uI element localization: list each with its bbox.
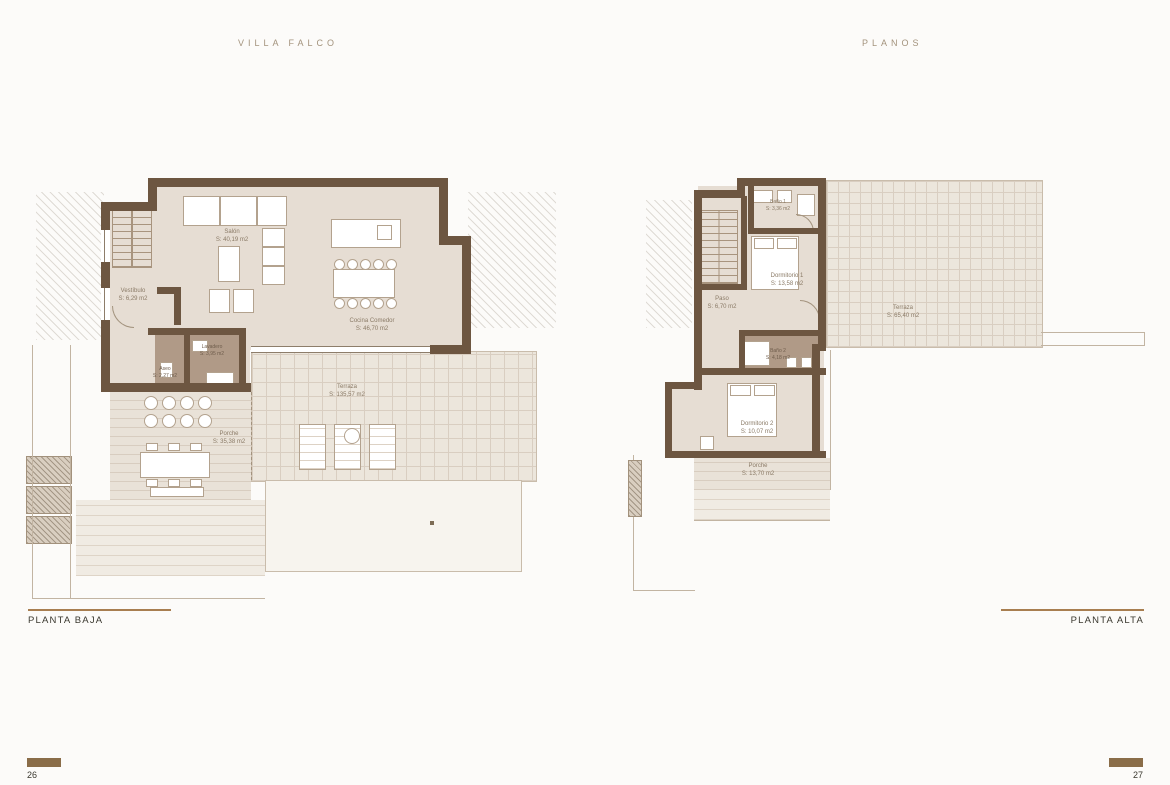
- pillow: [777, 238, 797, 249]
- caption-rule-right: [1001, 609, 1144, 611]
- floor-plan-planta-alta: Baño 1 S: 3,36 m2 Dormitorio 1 S: 13,58 …: [0, 0, 1170, 785]
- room-label-terraza-alta: Terraza S: 65,40 m2: [863, 304, 943, 320]
- wall: [812, 350, 820, 458]
- room-label-bano-1: Baño 1 S: 3,36 m2: [748, 199, 808, 213]
- footprint-line: [633, 590, 695, 591]
- caption-planta-baja: PLANTA BAJA: [28, 615, 103, 626]
- wall: [818, 178, 826, 350]
- lower-decking: [694, 490, 830, 521]
- pillow: [754, 238, 774, 249]
- room-label-porche-alta: Porche S: 13,70 m2: [723, 462, 793, 478]
- site-hatch: [646, 200, 692, 328]
- caption-planta-alta: PLANTA ALTA: [944, 615, 1144, 626]
- caption-rule-left: [28, 609, 171, 611]
- room-fill: [670, 384, 698, 454]
- page-bar-left: [27, 758, 61, 767]
- pillow: [754, 385, 775, 396]
- footprint-line: [830, 350, 831, 490]
- wall: [748, 228, 826, 234]
- page-number-left: 26: [27, 770, 37, 780]
- wall: [694, 284, 747, 290]
- page-bar-right: [1109, 758, 1143, 767]
- wall: [737, 178, 826, 186]
- nightstand: [700, 436, 714, 450]
- room-label-dormitorio-2: Dormitorio 2 S: 10,07 m2: [717, 420, 797, 436]
- wall: [694, 190, 702, 390]
- staircase: [700, 210, 738, 284]
- planter: [628, 460, 642, 517]
- book-spread: VILLA FALCO PLANOS: [0, 0, 1170, 785]
- wall: [694, 368, 826, 375]
- wall: [739, 330, 745, 375]
- room-label-dormitorio-1: Dormitorio 1 S: 13,58 m2: [747, 272, 827, 288]
- room-label-paso: Paso S: 6,70 m2: [692, 295, 752, 311]
- wall: [745, 330, 826, 336]
- footprint-line: [1041, 345, 1145, 346]
- wall: [665, 382, 672, 458]
- terrace-paving: [826, 180, 1043, 348]
- page-number-right: 27: [1043, 770, 1143, 780]
- pillow: [730, 385, 751, 396]
- wall: [665, 451, 826, 458]
- room-label-bano-2: Baño 2 S: 4,18 m2: [748, 348, 808, 362]
- footprint-line: [1144, 332, 1145, 345]
- footprint-line: [1041, 332, 1145, 333]
